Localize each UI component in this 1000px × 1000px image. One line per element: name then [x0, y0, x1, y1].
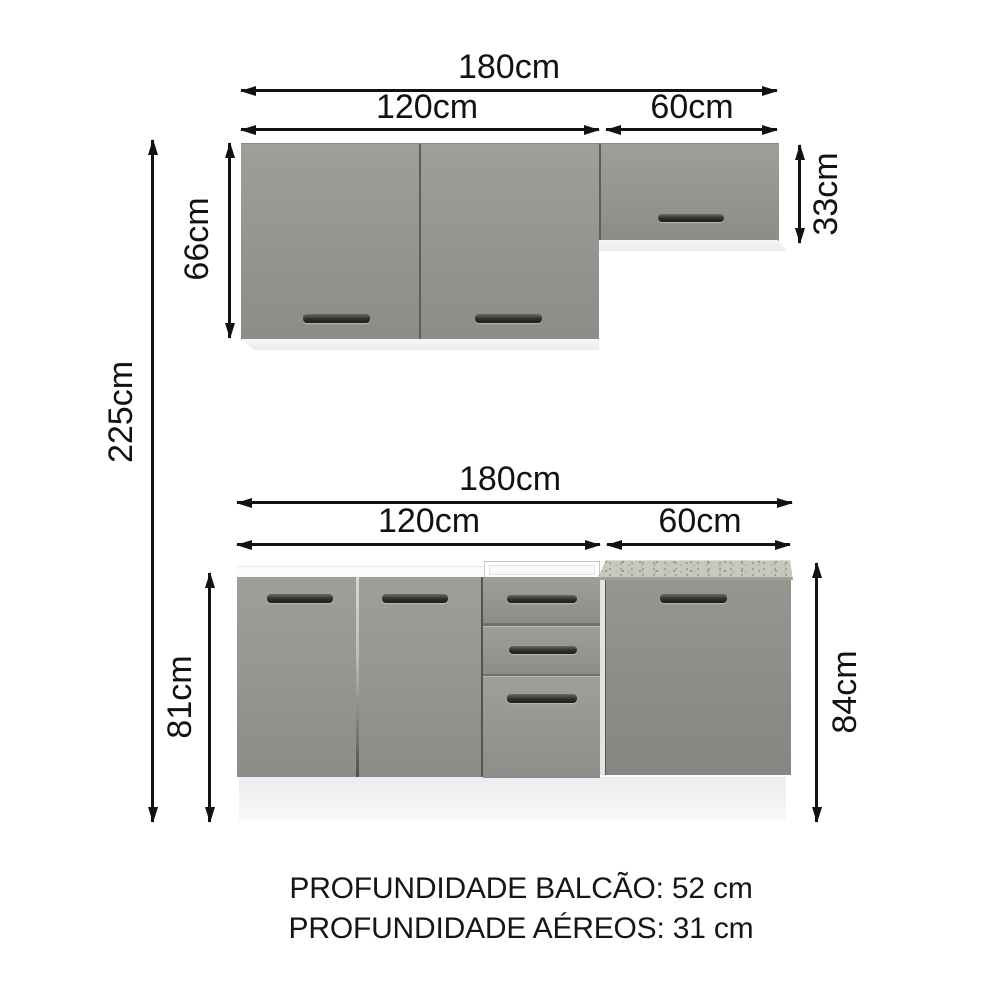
wall-door-60-handle [658, 214, 724, 222]
base-drawer-3 [483, 676, 600, 778]
wall-door-right-handle [475, 314, 542, 323]
dim-lower-84-label: 84cm [828, 650, 862, 733]
dim-overall-height-label: 225cm [104, 361, 138, 463]
dim-lower-81-label: 81cm [163, 655, 197, 738]
wall-cabinet-60 [599, 143, 779, 241]
drawer-2-handle [509, 646, 577, 654]
dimension-diagram: { "dimensions": { "upper_total_width": "… [0, 0, 1000, 1000]
base-cabinet-120 [237, 577, 600, 777]
wall-cabinet-120 [241, 143, 599, 340]
dim-upper-120-arrow [241, 128, 599, 131]
dim-upper-66-label: 66cm [180, 197, 214, 280]
dim-lower-81-arrow [208, 573, 211, 822]
dim-overall-height-arrow [151, 140, 154, 822]
dim-lower-60-label: 60cm [658, 504, 741, 538]
countertop [597, 560, 793, 580]
plinth [239, 777, 786, 821]
base-door-left-handle [267, 594, 333, 603]
dim-lower-60-arrow [607, 543, 790, 546]
wall-door-divider [419, 144, 421, 340]
wall-cabinet-60-bottom-panel [599, 240, 787, 251]
base-door-middle-handle [382, 594, 448, 603]
base-door-left [237, 577, 356, 777]
dim-upper-33-label: 33cm [809, 152, 843, 235]
dim-lower-120-arrow [237, 543, 600, 546]
dim-upper-60-label: 60cm [650, 90, 733, 124]
drawer-1-handle [507, 595, 577, 603]
dim-upper-60-arrow [606, 128, 777, 131]
drawer-3-handle [507, 694, 577, 703]
dim-lower-120-label: 120cm [378, 504, 480, 538]
base-door-middle [359, 577, 481, 777]
wall-cabinet-120-bottom-panel [241, 339, 599, 350]
base-cabinet-60-door [605, 575, 791, 775]
dim-lower-84-arrow [815, 563, 818, 822]
sink-basin [489, 565, 595, 575]
footer-depth-counter: PROFUNDIDADE BALCÃO: 52 cm [289, 874, 752, 904]
dim-upper-33-arrow [798, 145, 801, 243]
dim-lower-total-label: 180cm [459, 462, 561, 496]
sink-recess [484, 561, 600, 578]
wall-door-left-handle [303, 314, 370, 323]
dim-upper-66-arrow [228, 143, 231, 338]
footer-depth-upper: PROFUNDIDADE AÉREOS: 31 cm [289, 914, 754, 944]
base-door-60-handle [660, 594, 727, 603]
dim-upper-total-label: 180cm [458, 50, 560, 84]
dim-upper-120-label: 120cm [376, 90, 478, 124]
